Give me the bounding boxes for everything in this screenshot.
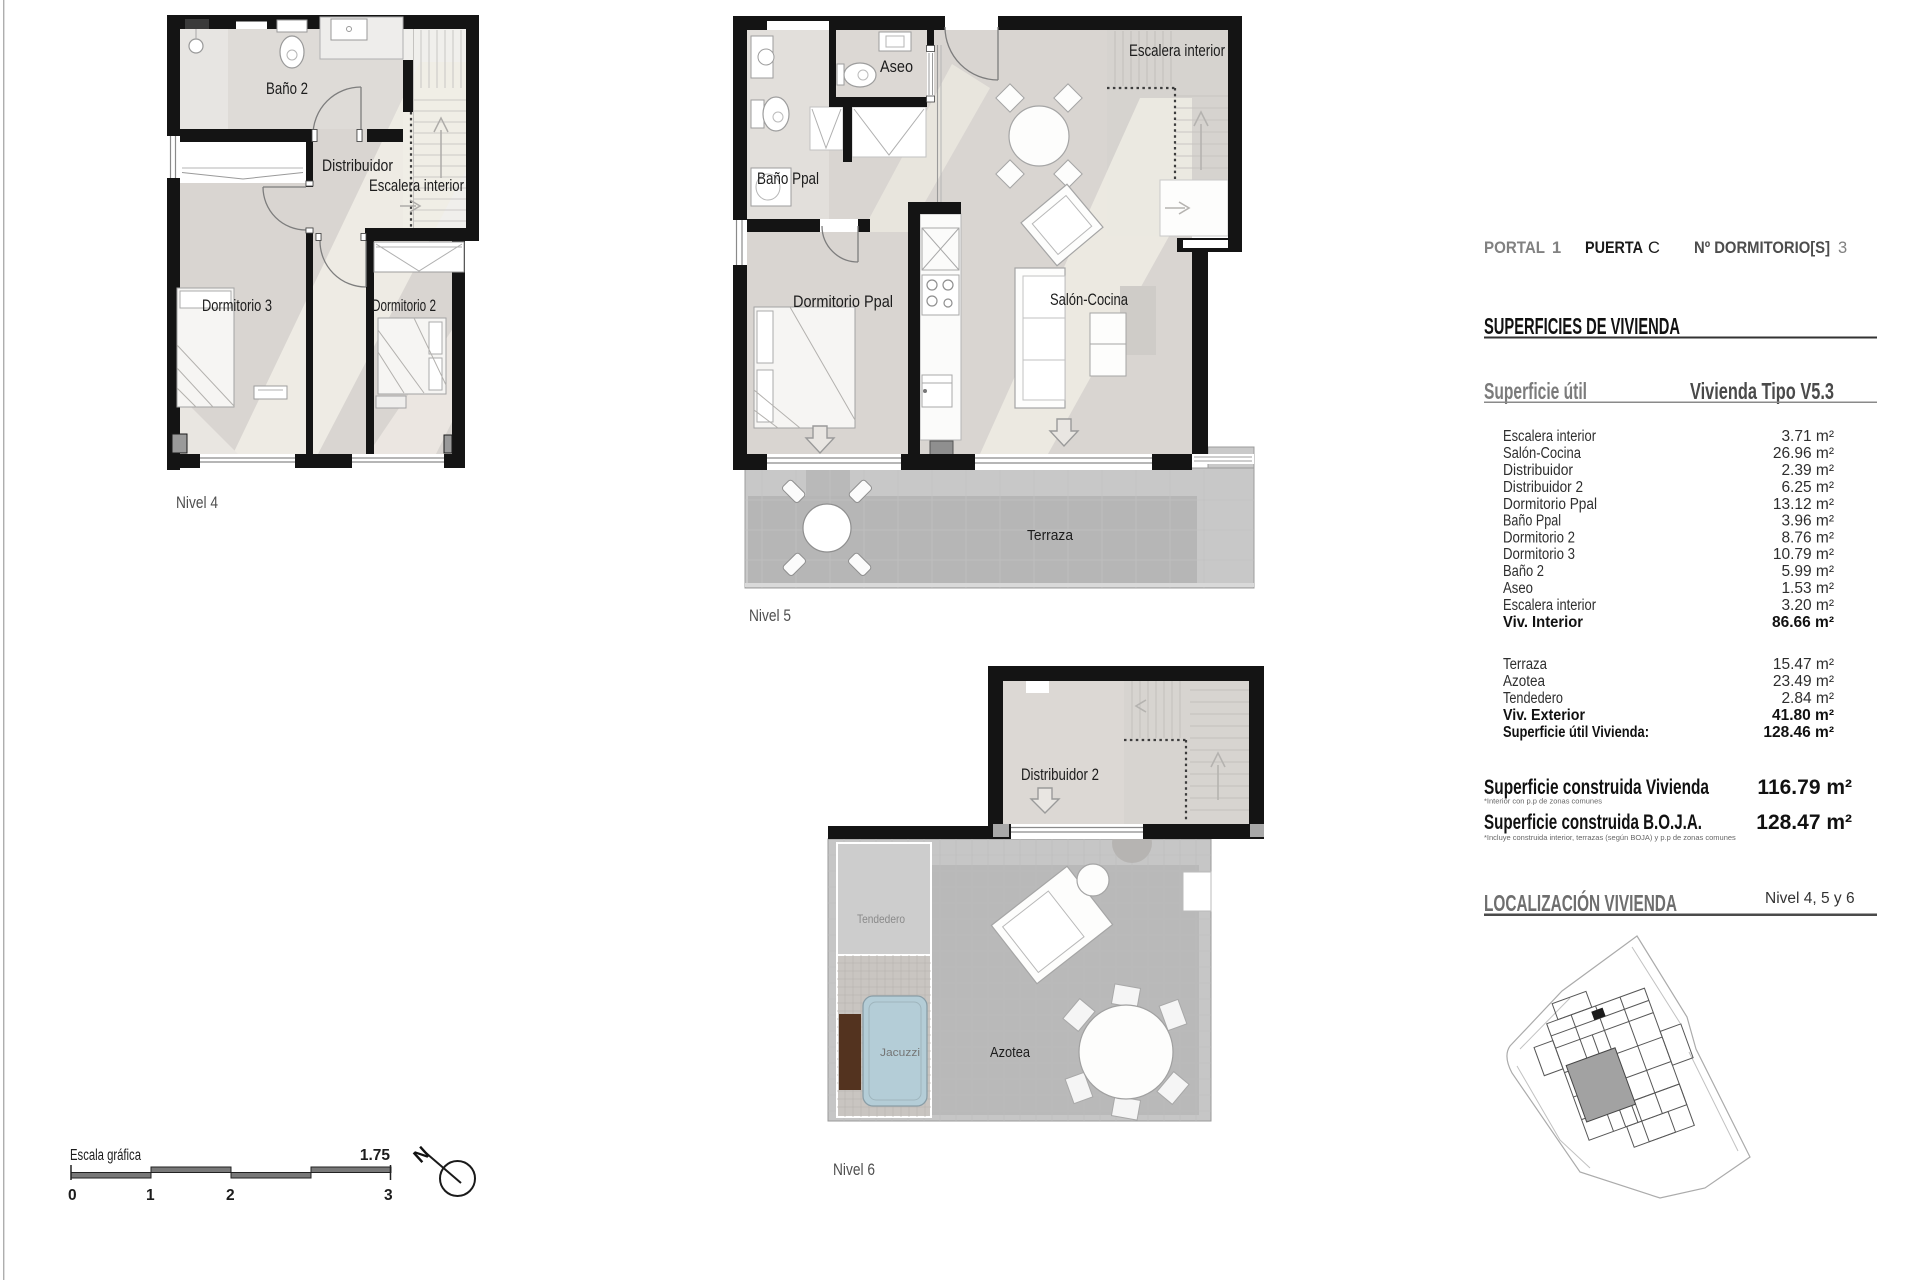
- svg-text:Nº DORMITORIO[S]: Nº DORMITORIO[S]: [1694, 239, 1830, 257]
- svg-text:Jacuzzi: Jacuzzi: [880, 1047, 920, 1059]
- svg-text:6.25 m²: 6.25 m²: [1781, 479, 1834, 496]
- svg-text:Superficie construida B.O.J.A.: Superficie construida B.O.J.A.: [1484, 811, 1702, 834]
- svg-text:LOCALIZACIÓN VIVIENDA: LOCALIZACIÓN VIVIENDA: [1484, 889, 1677, 916]
- svg-text:Tendedero: Tendedero: [1503, 690, 1563, 707]
- svg-text:3.71 m²: 3.71 m²: [1781, 428, 1834, 445]
- svg-text:*Incluye construida interior,: *Incluye construida interior, terrazas (…: [1484, 833, 1736, 842]
- svg-text:Nivel 6: Nivel 6: [833, 1160, 875, 1179]
- svg-text:Escalera interior: Escalera interior: [1503, 428, 1596, 445]
- svg-text:Distribuidor 2: Distribuidor 2: [1503, 479, 1583, 496]
- svg-text:Baño Ppal: Baño Ppal: [1503, 513, 1561, 530]
- svg-text:1.75: 1.75: [360, 1147, 391, 1164]
- svg-text:1.53 m²: 1.53 m²: [1781, 580, 1834, 597]
- svg-text:Escalera interior: Escalera interior: [369, 176, 464, 195]
- svg-text:10.79 m²: 10.79 m²: [1773, 546, 1834, 563]
- svg-text:Terraza: Terraza: [1027, 527, 1074, 544]
- svg-text:Baño 2: Baño 2: [266, 79, 308, 98]
- svg-text:Aseo: Aseo: [1503, 580, 1533, 597]
- svg-text:Viv. Exterior: Viv. Exterior: [1503, 707, 1585, 724]
- svg-text:Terraza: Terraza: [1503, 656, 1547, 673]
- svg-text:Salón-Cocina: Salón-Cocina: [1503, 445, 1581, 462]
- svg-text:Dormitorio 3: Dormitorio 3: [202, 296, 272, 315]
- svg-text:2: 2: [226, 1187, 235, 1204]
- svg-text:Nivel 5: Nivel 5: [749, 606, 791, 625]
- svg-text:Azotea: Azotea: [1503, 673, 1545, 690]
- svg-text:Azotea: Azotea: [990, 1044, 1031, 1061]
- svg-text:Salón-Cocina: Salón-Cocina: [1050, 290, 1128, 309]
- svg-text:3.20 m²: 3.20 m²: [1781, 597, 1834, 614]
- svg-text:Superficie útil: Superficie útil: [1484, 378, 1587, 404]
- svg-text:8.76 m²: 8.76 m²: [1781, 530, 1834, 547]
- svg-text:Viv. Interior: Viv. Interior: [1503, 614, 1583, 631]
- svg-text:128.46 m²: 128.46 m²: [1763, 724, 1834, 741]
- svg-text:3: 3: [1838, 239, 1847, 257]
- svg-text:Escalera interior: Escalera interior: [1129, 41, 1225, 60]
- svg-text:5.99 m²: 5.99 m²: [1781, 563, 1834, 580]
- svg-text:0: 0: [68, 1187, 77, 1204]
- svg-text:Dormitorio 3: Dormitorio 3: [1503, 546, 1575, 563]
- svg-text:Nivel 4, 5 y 6: Nivel 4, 5 y 6: [1765, 890, 1855, 907]
- svg-text:23.49 m²: 23.49 m²: [1773, 673, 1834, 690]
- svg-text:Escalera interior: Escalera interior: [1503, 597, 1596, 614]
- svg-text:Baño Ppal: Baño Ppal: [757, 169, 819, 188]
- svg-text:Baño 2: Baño 2: [1503, 563, 1544, 580]
- svg-text:2.84 m²: 2.84 m²: [1781, 690, 1834, 707]
- svg-text:86.66 m²: 86.66 m²: [1772, 614, 1834, 631]
- svg-text:PORTAL: PORTAL: [1484, 239, 1545, 257]
- svg-text:Nivel 4: Nivel 4: [176, 493, 218, 512]
- svg-text:13.12 m²: 13.12 m²: [1773, 496, 1834, 513]
- svg-text:C: C: [1648, 239, 1660, 257]
- svg-text:1: 1: [1552, 239, 1561, 257]
- svg-text:*Interior con p.p de zonas com: *Interior con p.p de zonas comunes: [1484, 797, 1602, 806]
- svg-text:Dormitorio 2: Dormitorio 2: [372, 296, 436, 315]
- svg-text:2.39 m²: 2.39 m²: [1781, 462, 1834, 479]
- svg-text:3.96 m²: 3.96 m²: [1781, 513, 1834, 530]
- svg-text:SUPERFICIES DE VIVIENDA: SUPERFICIES DE VIVIENDA: [1484, 313, 1680, 339]
- svg-text:Superficie útil Vivienda:: Superficie útil Vivienda:: [1503, 724, 1649, 741]
- svg-text:128.47 m²: 128.47 m²: [1756, 811, 1852, 834]
- svg-text:41.80 m²: 41.80 m²: [1772, 707, 1834, 724]
- svg-text:15.47 m²: 15.47 m²: [1773, 656, 1834, 673]
- svg-text:Escala gráfica: Escala gráfica: [70, 1147, 141, 1164]
- svg-text:Tendedero: Tendedero: [857, 912, 905, 926]
- svg-text:116.79 m²: 116.79 m²: [1757, 776, 1852, 799]
- svg-text:Distribuidor: Distribuidor: [1503, 462, 1573, 479]
- svg-text:Dormitorio Ppal: Dormitorio Ppal: [1503, 496, 1597, 513]
- svg-text:PUERTA: PUERTA: [1585, 239, 1643, 257]
- svg-text:26.96 m²: 26.96 m²: [1773, 445, 1834, 462]
- svg-text:Dormitorio Ppal: Dormitorio Ppal: [793, 292, 893, 311]
- svg-text:Aseo: Aseo: [880, 57, 913, 76]
- svg-text:3: 3: [384, 1187, 393, 1204]
- svg-text:1: 1: [146, 1187, 155, 1204]
- svg-text:Distribuidor: Distribuidor: [322, 156, 393, 175]
- svg-text:Distribuidor 2: Distribuidor 2: [1021, 765, 1099, 784]
- svg-text:Vivienda Tipo V5.3: Vivienda Tipo V5.3: [1690, 378, 1834, 404]
- svg-text:Dormitorio 2: Dormitorio 2: [1503, 530, 1575, 547]
